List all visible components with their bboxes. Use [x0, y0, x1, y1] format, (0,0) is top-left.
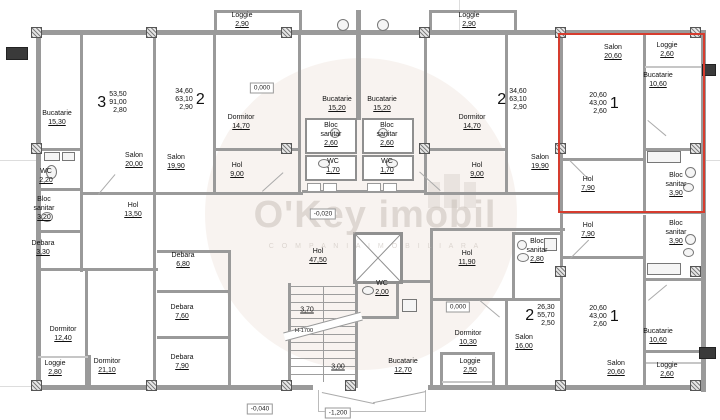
room-label: Bucatarie10,60 [643, 328, 673, 346]
room-label: Salon19,90 [167, 154, 185, 172]
apartment-label: 226,3055,702,50 [525, 304, 554, 328]
axis-line [0, 160, 36, 161]
room-name: Debara [32, 240, 55, 249]
exterior-unit-icon [6, 47, 28, 60]
apartment-area-value: 63,10 [509, 96, 527, 104]
wall-segment [440, 352, 495, 355]
room-area: 2,50 [459, 367, 480, 376]
wall-segment [88, 355, 91, 388]
wall-segment [514, 10, 517, 33]
toilet-sink-fixture-icon [685, 234, 696, 245]
room-label: Loggie2,60 [656, 362, 677, 380]
room-name: Salon [607, 360, 625, 369]
wall-segment [157, 336, 231, 339]
room-name: Bloc [33, 196, 54, 205]
room-label: Debara3,30 [32, 240, 55, 258]
service-shaft-box [383, 183, 397, 192]
apartment-areas: 34,6063,102,90 [175, 88, 193, 112]
room-label: Blocsanitar3,90 [665, 220, 686, 246]
room-area: 47,50 [309, 257, 327, 266]
room-area: 19,90 [531, 163, 549, 172]
room-area: 3,90 [665, 238, 686, 247]
room-label: Dormitor10,30 [455, 330, 482, 348]
wall-segment [36, 188, 83, 191]
apartment-number: 2 [196, 91, 205, 109]
level-marker: 0,000 [446, 302, 470, 313]
service-shaft-box [323, 183, 337, 192]
service-shaft-box [307, 183, 321, 192]
room-label: WC2,00 [375, 280, 389, 298]
apartment-area-value: 63,10 [175, 96, 193, 104]
room-name: Debara [172, 252, 195, 261]
structural-column [281, 143, 292, 154]
toilet-sink-fixture-icon [362, 286, 374, 295]
room-label: Salon16,00 [515, 334, 533, 352]
room-name: Salon [531, 154, 549, 163]
room-area: 9,00 [230, 171, 244, 180]
structural-column [690, 266, 701, 277]
room-name: Hol [581, 222, 595, 231]
room-label: Blocsanitar2,80 [526, 238, 547, 264]
apartment-area-value: 2,90 [509, 104, 527, 112]
room-area: 1,70 [380, 167, 394, 176]
wall-segment [424, 148, 508, 151]
room-label: Blocsanitar2,60 [376, 122, 397, 148]
room-name: Hol [124, 202, 142, 211]
room-label: Hol9,00 [230, 162, 244, 180]
room-name: Hol [459, 250, 476, 259]
apartment-area-value: 34,60 [509, 88, 527, 96]
room-area: 15,20 [367, 105, 397, 114]
wall-segment [430, 228, 433, 388]
highlighted-apartment-outline[interactable] [558, 33, 705, 213]
room-label: Loggie2,50 [459, 358, 480, 376]
wall-segment [36, 148, 83, 151]
level-marker: -0,020 [310, 209, 336, 220]
service-shaft-box [367, 183, 381, 192]
structural-column [555, 266, 566, 277]
room-label: Hol11,90 [459, 250, 476, 268]
apartment-area-value: 2,50 [537, 320, 555, 328]
level-marker: -0,040 [247, 404, 273, 415]
bathtub-fixture-icon [402, 299, 417, 312]
room-name: WC [39, 168, 53, 177]
apartment-areas: 26,3055,702,50 [537, 304, 555, 328]
room-area: 13,50 [124, 211, 142, 220]
room-area: 2,60 [656, 371, 677, 380]
room-area: 14,70 [228, 123, 255, 132]
room-area: 2,60 [320, 140, 341, 149]
room-label: Blocsanitar3,20 [33, 196, 54, 222]
wall-segment [298, 35, 301, 193]
room-label: WC1,70 [326, 158, 340, 176]
room-area: 19,90 [167, 163, 185, 172]
room-name: Loggie [231, 12, 252, 21]
wall-segment [562, 256, 646, 259]
toilet-sink-fixture-icon [337, 19, 349, 31]
apartment-label: 234,6063,102,90 [497, 88, 526, 112]
room-label: Loggie2,80 [44, 360, 65, 378]
room-area: 2,90 [458, 21, 479, 30]
apartment-areas: 53,5091,002,80 [109, 91, 127, 115]
dimension-label: H-1700 [295, 328, 313, 334]
apartment-label: 20,6043,002,601 [589, 305, 618, 329]
room-label: Bucatarie15,30 [42, 110, 72, 128]
room-name: sanitar [33, 205, 54, 214]
apartment-area-value: 2,60 [589, 321, 607, 329]
room-name: sanitar [376, 131, 397, 140]
room-area: 2,80 [44, 369, 65, 378]
room-label: Salon19,90 [531, 154, 549, 172]
structural-column [31, 27, 42, 38]
room-name: WC [375, 280, 389, 289]
room-label: Debara7,90 [171, 354, 194, 372]
toilet-sink-fixture-icon [683, 248, 694, 257]
room-area: 16,00 [515, 343, 533, 352]
room-label: Hol13,50 [124, 202, 142, 220]
room-area: 1,70 [326, 167, 340, 176]
room-name: Dormitor [228, 114, 255, 123]
dimension-label: 3,00 [331, 364, 345, 371]
elevator-x-icon [356, 235, 400, 281]
bathtub-fixture-icon [647, 263, 681, 275]
room-label: Bucatarie15,20 [322, 96, 352, 114]
wall-segment [560, 214, 563, 388]
room-area: 21,10 [94, 367, 121, 376]
room-label: WC2,20 [39, 168, 53, 186]
room-area: 7,90 [171, 363, 194, 372]
apartment-area-value: 20,60 [589, 305, 607, 313]
wall-segment [645, 350, 703, 353]
apartment-area-value: 43,00 [589, 313, 607, 321]
room-name: Bucatarie [42, 110, 72, 119]
room-label: Dormitor21,10 [94, 358, 121, 376]
wall-segment [153, 35, 156, 388]
structural-column [419, 143, 430, 154]
room-area: 14,70 [459, 123, 486, 132]
wall-segment [214, 10, 302, 13]
room-name: Hol [470, 162, 484, 171]
room-label: Dormitor14,70 [228, 114, 255, 132]
dimension-label: 3,70 [300, 307, 314, 314]
elevator-shaft [353, 232, 403, 284]
structural-column [31, 143, 42, 154]
structural-column [146, 27, 157, 38]
loggia-railing [38, 356, 88, 358]
door-swing-line [648, 285, 667, 301]
wall-segment [299, 10, 302, 33]
wall-segment [355, 283, 358, 388]
wall-segment [36, 268, 158, 271]
wall-segment [512, 232, 515, 298]
wall-segment [505, 35, 508, 193]
apartment-area-value: 53,50 [109, 91, 127, 99]
wall-segment [492, 352, 495, 388]
structural-column [281, 380, 292, 391]
apartment-area-value: 91,00 [109, 99, 127, 107]
wall-segment [424, 35, 427, 193]
room-area: 3,20 [33, 214, 54, 223]
room-label: Bucatarie12,70 [388, 358, 418, 376]
structural-column [31, 380, 42, 391]
room-name: Loggie [459, 358, 480, 367]
apartment-number: 2 [525, 307, 534, 325]
room-name: WC [326, 158, 340, 167]
apartment-areas: 20,6043,002,60 [589, 305, 607, 329]
axis-line [706, 160, 720, 161]
room-area: 12,70 [388, 367, 418, 376]
apartment-area-value: 2,80 [109, 107, 127, 115]
wall-segment [356, 10, 361, 120]
room-label: Loggie2,90 [231, 12, 252, 30]
apartment-number: 1 [610, 308, 619, 326]
wall-segment [214, 10, 217, 33]
level-marker: -1,200 [325, 408, 351, 419]
apartment-area-value: 55,70 [537, 312, 555, 320]
loggia-railing [442, 381, 492, 383]
room-area: 15,30 [42, 119, 72, 128]
structural-column [419, 27, 430, 38]
wall-segment [505, 300, 508, 388]
room-area: 7,90 [581, 231, 595, 240]
room-area: 6,80 [172, 261, 195, 270]
structural-column [281, 27, 292, 38]
room-area: 2,80 [526, 256, 547, 265]
watermark-brand: O'Key imobil [225, 194, 525, 237]
apartment-area-value: 2,90 [175, 104, 193, 112]
room-name: Salon [515, 334, 533, 343]
wall-segment [36, 385, 313, 390]
room-area: 9,00 [470, 171, 484, 180]
room-label: Salon20,60 [607, 360, 625, 378]
room-area: 20,60 [607, 369, 625, 378]
room-name: Hol [309, 248, 327, 257]
room-name: Bucatarie [367, 96, 397, 105]
room-area: 20,00 [125, 161, 143, 170]
room-label: Dormitor12,40 [50, 326, 77, 344]
room-name: Dormitor [50, 326, 77, 335]
apartment-label: 353,5091,002,80 [97, 91, 126, 115]
room-area: 12,40 [50, 335, 77, 344]
room-area: 7,60 [171, 313, 194, 322]
room-label: WC1,70 [380, 158, 394, 176]
level-marker: 0,000 [250, 83, 274, 94]
floor-plan: Loggie2,90Loggie2,90Bucatarie15,30Salon2… [0, 0, 720, 420]
room-label: Dormitor14,70 [459, 114, 486, 132]
room-label: Salon20,00 [125, 152, 143, 170]
structural-column [146, 380, 157, 391]
room-name: Bucatarie [388, 358, 418, 367]
room-name: Debara [171, 354, 194, 363]
bathtub-fixture-icon [62, 152, 75, 161]
room-label: Hol47,50 [309, 248, 327, 266]
exterior-unit-icon [699, 347, 716, 359]
room-name: sanitar [320, 131, 341, 140]
room-area: 15,20 [322, 105, 352, 114]
room-name: Dormitor [455, 330, 482, 339]
room-area: 3,30 [32, 249, 55, 258]
room-name: Bloc [665, 220, 686, 229]
room-name: Loggie [458, 12, 479, 21]
room-name: Bloc [526, 238, 547, 247]
room-name: Dormitor [459, 114, 486, 123]
apartment-label: 34,6063,102,902 [175, 88, 204, 112]
wall-segment [396, 283, 399, 319]
room-label: Hol7,90 [581, 222, 595, 240]
apartment-area-value: 34,60 [175, 88, 193, 96]
room-name: Salon [125, 152, 143, 161]
room-label: Loggie2,90 [458, 12, 479, 30]
room-label: Bucatarie15,20 [367, 96, 397, 114]
room-name: WC [380, 158, 394, 167]
room-name: Bucatarie [322, 96, 352, 105]
room-area: 11,90 [459, 259, 476, 268]
watermark-tagline: C O M P A N I A I M O B I L I A R A [255, 243, 495, 250]
bathtub-fixture-icon [44, 152, 60, 161]
room-area: 2,90 [231, 21, 252, 30]
room-area: 2,00 [375, 289, 389, 298]
room-name: Bloc [376, 122, 397, 131]
wall-segment [213, 35, 216, 193]
room-label: Hol9,00 [470, 162, 484, 180]
room-label: Debara7,60 [171, 304, 194, 322]
room-area: 10,60 [643, 337, 673, 346]
wall-segment [645, 278, 703, 281]
room-name: Loggie [656, 362, 677, 371]
wall-segment [157, 290, 231, 293]
wall-segment [428, 385, 706, 390]
room-name: Loggie [44, 360, 65, 369]
structural-column [555, 380, 566, 391]
room-name: Hol [230, 162, 244, 171]
room-name: sanitar [665, 229, 686, 238]
structural-column [345, 380, 356, 391]
wall-segment [36, 230, 83, 233]
toilet-sink-fixture-icon [377, 19, 389, 31]
room-area: 2,20 [39, 177, 53, 186]
room-name: Dormitor [94, 358, 121, 367]
room-label: Blocsanitar2,60 [320, 122, 341, 148]
room-area: 10,30 [455, 339, 482, 348]
apartment-area-value: 26,30 [537, 304, 555, 312]
structural-column [690, 380, 701, 391]
wall-segment [80, 35, 83, 272]
apartment-areas: 34,6063,102,90 [509, 88, 527, 112]
room-name: sanitar [526, 247, 547, 256]
room-name: Bucatarie [643, 328, 673, 337]
apartment-number: 2 [497, 91, 506, 109]
wall-segment [358, 316, 399, 319]
wall-segment [228, 250, 231, 388]
room-name: Debara [171, 304, 194, 313]
room-name: Bloc [320, 122, 341, 131]
room-label: Debara6,80 [172, 252, 195, 270]
room-area: 2,60 [376, 140, 397, 149]
room-name: Salon [167, 154, 185, 163]
apartment-number: 3 [97, 94, 106, 112]
